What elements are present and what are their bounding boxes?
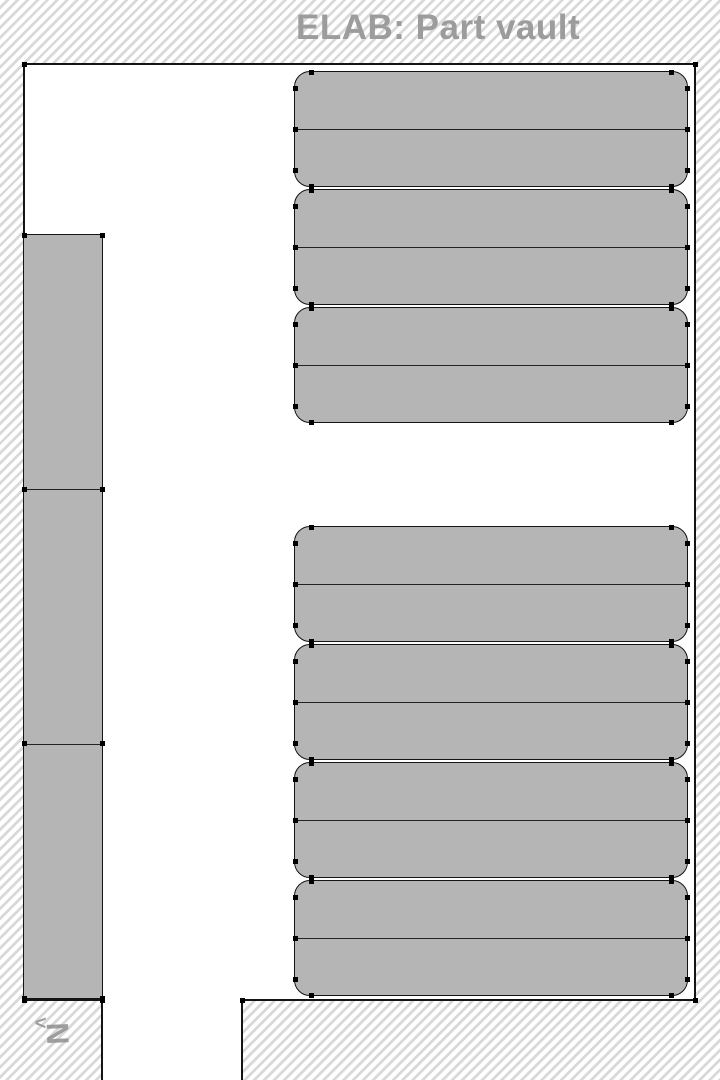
vertex-marker [293, 541, 298, 546]
vertex-marker [669, 420, 674, 425]
shelf-divider-line [295, 129, 687, 130]
vertex-marker [685, 363, 690, 368]
vertex-marker [685, 204, 690, 209]
vertex-marker [685, 245, 690, 250]
north-arrow-letter: N [38, 1022, 75, 1046]
shelf-divider-line [295, 584, 687, 585]
shelf-rack-bottom[interactable] [294, 644, 688, 760]
vertex-marker [293, 582, 298, 587]
vertex-marker [685, 286, 690, 291]
vertex-marker [685, 404, 690, 409]
shelf-divider-line [295, 702, 687, 703]
vertex-marker [685, 541, 690, 546]
doorway-corridor [101, 999, 243, 1080]
north-arrow-icon: <N [29, 1010, 72, 1053]
vertex-marker [309, 420, 314, 425]
left-storage-rack[interactable] [23, 234, 103, 999]
vertex-marker [309, 70, 314, 75]
vertex-marker [293, 286, 298, 291]
vertex-marker [685, 936, 690, 941]
vertex-marker [293, 659, 298, 664]
vertex-marker [293, 168, 298, 173]
vertex-marker [309, 525, 314, 530]
vertex-marker [293, 204, 298, 209]
vertex-marker [293, 859, 298, 864]
vertex-marker [22, 62, 27, 67]
vertex-marker [293, 245, 298, 250]
shelf-divider-line [295, 820, 687, 821]
vertex-marker [240, 998, 245, 1003]
shelf-divider-line [295, 938, 687, 939]
vertex-marker [309, 761, 314, 766]
vertex-marker [293, 741, 298, 746]
vertex-marker [685, 859, 690, 864]
vertex-marker [22, 998, 27, 1003]
shelf-divider-line [295, 365, 687, 366]
shelf-rack-top[interactable] [294, 307, 688, 423]
vertex-marker [669, 643, 674, 648]
vertex-marker [669, 306, 674, 311]
vertex-marker [669, 70, 674, 75]
vertex-marker [293, 127, 298, 132]
vertex-marker [693, 62, 698, 67]
vertex-marker [293, 895, 298, 900]
vertex-marker [309, 879, 314, 884]
vertex-marker [685, 700, 690, 705]
shelf-divider-line [295, 247, 687, 248]
vertex-marker [293, 818, 298, 823]
vertex-marker [685, 659, 690, 664]
vertex-marker [293, 977, 298, 982]
vertex-marker [685, 86, 690, 91]
vertex-marker [22, 233, 27, 238]
floorplan-canvas: ELAB: Part vault <N [0, 0, 720, 1080]
vertex-marker [309, 643, 314, 648]
vertex-marker [100, 487, 105, 492]
vertex-marker [685, 895, 690, 900]
shelf-rack-top[interactable] [294, 189, 688, 305]
shelf-rack-bottom[interactable] [294, 762, 688, 878]
shelf-rack-bottom[interactable] [294, 880, 688, 996]
vertex-marker [309, 306, 314, 311]
page-title: ELAB: Part vault [296, 8, 580, 48]
vertex-marker [669, 525, 674, 530]
vertex-marker [100, 233, 105, 238]
vertex-marker [22, 487, 27, 492]
vertex-marker [685, 741, 690, 746]
vertex-marker [309, 188, 314, 193]
vertex-marker [293, 777, 298, 782]
vertex-marker [693, 998, 698, 1003]
vertex-marker [293, 363, 298, 368]
shelf-divider-line [24, 744, 102, 745]
vertex-marker [309, 993, 314, 998]
vertex-marker [685, 818, 690, 823]
vertex-marker [100, 998, 105, 1003]
vertex-marker [685, 777, 690, 782]
vertex-marker [669, 188, 674, 193]
vertex-marker [293, 404, 298, 409]
vertex-marker [669, 879, 674, 884]
vertex-marker [293, 936, 298, 941]
vertex-marker [669, 993, 674, 998]
vertex-marker [685, 168, 690, 173]
vertex-marker [685, 322, 690, 327]
vertex-marker [293, 86, 298, 91]
vertex-marker [293, 322, 298, 327]
vertex-marker [685, 623, 690, 628]
vertex-marker [685, 127, 690, 132]
vertex-marker [685, 582, 690, 587]
vertex-marker [293, 700, 298, 705]
vertex-marker [293, 623, 298, 628]
shelf-rack-top[interactable] [294, 71, 688, 187]
vertex-marker [669, 761, 674, 766]
shelf-rack-bottom[interactable] [294, 526, 688, 642]
vertex-marker [100, 741, 105, 746]
vertex-marker [22, 741, 27, 746]
shelf-divider-line [24, 489, 102, 490]
vertex-marker [685, 977, 690, 982]
